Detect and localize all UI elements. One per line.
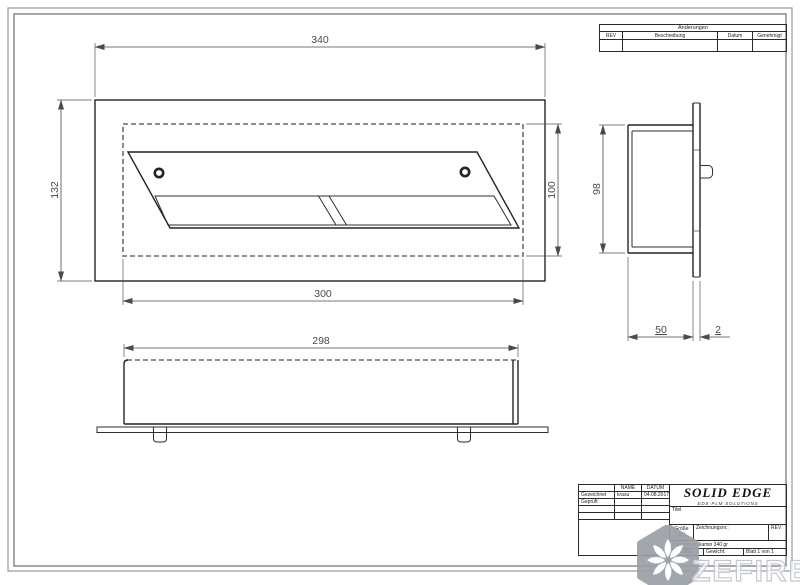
burner-deck-outline bbox=[128, 152, 519, 228]
tb-drawn-date: 04.08.2017 bbox=[642, 492, 669, 499]
front-flange-outline bbox=[95, 100, 545, 281]
watermark: ZEFIRE bbox=[600, 525, 800, 585]
dim-opening-width: 300 bbox=[123, 259, 523, 305]
revision-col-description: Beschreibung bbox=[623, 32, 718, 40]
front-hidden-box bbox=[123, 124, 523, 256]
tb-empty-cell bbox=[579, 513, 615, 520]
revision-col-rev: REV bbox=[600, 32, 623, 40]
mounting-foot-left bbox=[154, 433, 167, 443]
tb-title-field: Titel bbox=[670, 507, 786, 525]
revision-table: Änderungen REV Beschreibung Datum Genehm… bbox=[599, 24, 787, 52]
dim-body-height: 98 bbox=[591, 125, 625, 253]
tb-name-header: NAME bbox=[615, 485, 642, 492]
solid-edge-logo: SOLID EDGE bbox=[684, 485, 772, 501]
slot-divider-right bbox=[329, 196, 347, 225]
screw-hole-left bbox=[155, 169, 163, 177]
revision-table-title: Änderungen bbox=[600, 25, 786, 32]
dim-overall-width-label: 340 bbox=[311, 34, 329, 46]
tb-empty-cell bbox=[642, 506, 669, 513]
tb-drawn-label: Gezeichnet bbox=[579, 492, 615, 499]
dim-overall-width: 340 bbox=[95, 34, 545, 97]
dim-opening-height: 100 bbox=[526, 124, 562, 256]
dim-overall-height-label: 132 bbox=[49, 181, 61, 199]
dim-depth-label: 50 bbox=[655, 324, 667, 336]
tb-logo-box: SOLID EDGE EDS-PLM SOLUTIONS bbox=[670, 485, 786, 507]
dim-opening-height-label: 100 bbox=[546, 181, 558, 199]
plan-left-edge bbox=[124, 360, 128, 424]
tb-empty-cell bbox=[579, 506, 615, 513]
tb-empty-cell bbox=[615, 506, 642, 513]
dim-overall-height: 132 bbox=[49, 100, 92, 281]
tb-empty-cell bbox=[642, 513, 669, 520]
revision-empty-cell bbox=[600, 40, 623, 51]
tb-checked-name bbox=[615, 499, 642, 506]
drawing-sheet: 340 132 100 300 298 98 bbox=[0, 0, 800, 585]
solid-edge-logo-subtitle: EDS-PLM SOLUTIONS bbox=[698, 501, 759, 506]
tb-drawn-name: krasu bbox=[615, 492, 642, 499]
tb-empty-cell bbox=[615, 513, 642, 520]
dim-opening-width-label: 300 bbox=[314, 288, 332, 300]
dim-depth: 50 bbox=[628, 257, 693, 341]
revision-col-approved: Genehmigt bbox=[753, 32, 786, 40]
watermark-text: ZEFIRE bbox=[692, 555, 800, 585]
dim-body-width: 298 bbox=[124, 335, 518, 357]
tb-checked-label: Geprüft bbox=[579, 499, 615, 506]
front-view bbox=[95, 100, 545, 281]
watermark-pinwheel-icon bbox=[647, 539, 689, 581]
dim-flange-thickness-label: 2 bbox=[715, 324, 721, 336]
tb-corner-cell bbox=[579, 485, 615, 492]
plan-flange-plate bbox=[97, 427, 548, 433]
revision-empty-cell bbox=[718, 40, 753, 51]
dim-body-width-label: 298 bbox=[312, 335, 330, 347]
tb-checked-date bbox=[642, 499, 669, 506]
side-knob bbox=[700, 166, 713, 179]
revision-empty-cell bbox=[623, 40, 718, 51]
slot-divider-left bbox=[319, 196, 337, 225]
watermark-badge bbox=[641, 528, 695, 585]
revision-col-date: Datum bbox=[718, 32, 753, 40]
dim-flange-thickness: 2 bbox=[700, 281, 730, 341]
plan-view bbox=[97, 360, 548, 442]
screw-hole-right bbox=[461, 168, 469, 176]
tb-date-header: DATUM bbox=[642, 485, 669, 492]
side-view bbox=[628, 103, 713, 277]
dim-body-height-label: 98 bbox=[591, 183, 603, 195]
mounting-foot-right bbox=[458, 433, 471, 443]
